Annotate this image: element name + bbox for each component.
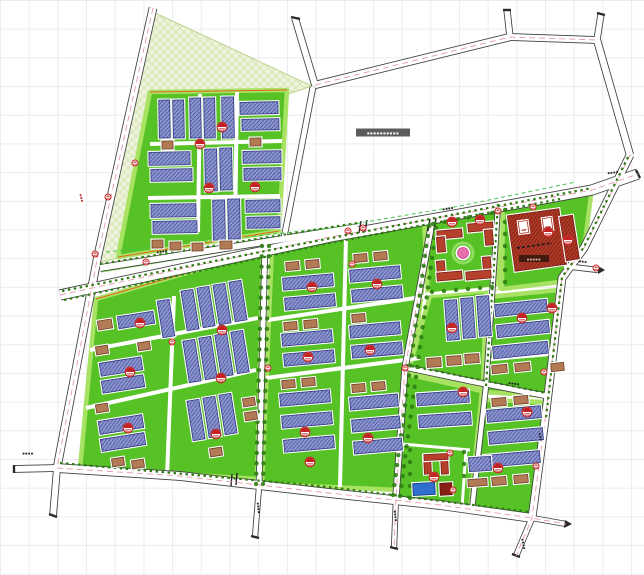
plot-stamp — [216, 373, 226, 383]
building-accessory-group — [463, 352, 481, 365]
building-accessory-group — [130, 457, 147, 470]
building-accessory-group — [248, 136, 262, 147]
building-accessory — [427, 358, 442, 368]
street-tree — [478, 286, 482, 290]
node-marker — [450, 487, 456, 493]
building-residential-slab-group — [220, 95, 236, 139]
building-public-red — [437, 271, 463, 281]
road-west-stub-down — [53, 468, 57, 516]
building-residential-slab-group — [151, 219, 198, 235]
node-marker — [132, 160, 138, 166]
node-marker-ring — [530, 204, 536, 210]
building-accessory — [374, 251, 388, 260]
plot-stamp — [123, 423, 133, 433]
street-tree — [503, 208, 507, 212]
building-residential-slab-group — [467, 455, 493, 474]
building-accessory — [514, 395, 529, 404]
site-plan-svg: ▪▪▪▪▪▪▪▪▪▪▪▪▪▪▪▪▪▪▪▪▪▪▪▪▪▪▪▪▪▪▪▪▪▪▪▪▪▪▪▪… — [0, 0, 644, 575]
street-tree — [503, 232, 507, 236]
building-residential-slab — [242, 119, 279, 131]
plot-stamp — [300, 427, 310, 437]
street-tree — [255, 440, 259, 444]
street-tree — [503, 268, 507, 272]
building-entry-symbol — [518, 220, 529, 233]
building-accessory-group — [160, 139, 174, 150]
node-marker — [447, 450, 453, 456]
building-residential-slab — [213, 200, 226, 240]
plot-stamp — [217, 122, 227, 132]
street-tree — [393, 473, 397, 477]
street-tree — [255, 451, 259, 455]
street-tree — [400, 474, 404, 478]
street-tree — [408, 414, 412, 418]
building-accessory — [250, 138, 261, 146]
street-tree — [407, 373, 411, 377]
node-marker — [265, 365, 271, 371]
street-tree — [262, 430, 266, 434]
building-accessory — [282, 379, 296, 388]
plot-stamp — [522, 407, 532, 417]
road-north-b-stub — [507, 10, 510, 37]
building-residential-slab-group — [218, 146, 234, 191]
reserved-area-tag-text: ▪▪▪▪▪▪▪▪▪▪ — [367, 131, 399, 136]
building-residential-slab — [151, 169, 192, 182]
building-accessory — [242, 397, 255, 407]
building-accessory — [468, 478, 487, 486]
building-accessory-group — [94, 401, 111, 414]
building-accessory-group — [513, 361, 532, 374]
street-tree — [259, 285, 263, 289]
building-accessory-group — [300, 376, 317, 388]
street-tree — [259, 264, 263, 268]
building-public-red-group — [483, 228, 496, 247]
building-accessory-group — [208, 445, 225, 458]
building-residential-slab — [153, 221, 197, 234]
building-residential-slab — [204, 98, 216, 138]
building-accessory-group — [280, 378, 297, 390]
street-tree — [392, 483, 396, 487]
junction-tick — [231, 474, 232, 486]
building-accessory-group — [549, 361, 566, 374]
building-accessory — [162, 141, 173, 149]
node-marker-ring — [169, 339, 175, 345]
road-v3 — [284, 87, 313, 238]
building-residential-slab-group — [211, 198, 227, 241]
street-tree — [408, 448, 412, 452]
kindergarten-plaza-group — [453, 243, 473, 263]
street-tree — [257, 368, 261, 372]
street-tree — [260, 244, 264, 248]
street-tree — [421, 264, 425, 268]
node-marker-ring — [92, 251, 98, 257]
building-accessory-group — [490, 396, 508, 408]
node-marker-ring — [105, 194, 111, 200]
node-marker — [143, 259, 149, 265]
street-tree — [261, 461, 265, 465]
node-marker — [533, 463, 539, 469]
street-tree — [411, 395, 415, 399]
node-marker-ring — [541, 369, 547, 375]
street-tree — [416, 355, 420, 359]
plot-stamp — [125, 367, 135, 377]
entry-symbol-mark — [521, 230, 526, 231]
building-accessory — [352, 383, 366, 392]
street-tree — [263, 399, 267, 403]
street-tree — [266, 285, 270, 289]
building-residential-slab — [149, 152, 190, 166]
node-marker — [402, 365, 408, 371]
building-residential-slab — [220, 148, 233, 190]
street-tree — [265, 306, 269, 310]
street-tree — [395, 463, 399, 467]
street-tree — [403, 454, 407, 458]
street-tree — [419, 335, 423, 339]
node-marker-ring — [593, 265, 599, 271]
street-tree — [255, 430, 259, 434]
building-accessory-group — [512, 473, 530, 485]
street-tree — [503, 244, 507, 248]
street-tree — [258, 306, 262, 310]
street-tree — [442, 289, 446, 293]
building-residential-slab — [240, 102, 278, 115]
node-marker-ring — [450, 487, 456, 493]
street-tree — [408, 472, 412, 476]
building-residential-slab — [461, 298, 476, 339]
node-marker — [530, 204, 536, 210]
plot-stamp — [543, 227, 553, 237]
building-accessory — [551, 362, 565, 371]
building-residential-slab-group — [157, 98, 172, 139]
street-tree — [263, 378, 267, 382]
street-tree — [254, 461, 258, 465]
street-tree — [391, 493, 395, 497]
street-tree — [266, 264, 270, 268]
node-marker-ring — [447, 450, 453, 456]
building-residential-slab — [246, 200, 280, 213]
building-public-red — [484, 230, 493, 246]
node-marker-ring — [533, 463, 539, 469]
building-public-red-group — [435, 235, 448, 254]
building-residential-slab-group — [171, 98, 186, 139]
street-tree — [466, 287, 470, 291]
street-tree — [416, 304, 420, 308]
plot-stamp — [204, 183, 214, 193]
node-marker-ring — [345, 228, 351, 234]
road-north-stub-a — [295, 18, 315, 85]
building-accessory — [465, 354, 480, 364]
street-tree — [263, 389, 267, 393]
street-tree — [431, 246, 435, 250]
street-tree — [424, 244, 428, 248]
pool-group — [411, 481, 437, 497]
street-tree — [257, 347, 261, 351]
street-tree — [412, 333, 416, 337]
building-accessory — [492, 397, 507, 406]
building-accessory — [111, 457, 124, 467]
building-accessory-group — [490, 363, 509, 376]
plot-stamp — [547, 303, 557, 313]
building-accessory — [209, 447, 222, 457]
street-tree — [398, 494, 402, 498]
building-accessory — [152, 240, 163, 248]
building-public-red-group — [422, 452, 449, 462]
street-tree — [258, 316, 262, 320]
street-tree — [261, 471, 265, 475]
node-marker — [360, 225, 366, 231]
building-accessory — [97, 319, 112, 330]
node-marker-ring — [402, 365, 408, 371]
street-tree — [406, 434, 410, 438]
road-label-k-text: ▪▪▪ — [578, 259, 587, 264]
building-public-red — [424, 453, 448, 460]
building-accessory — [284, 321, 298, 330]
street-tree — [462, 462, 466, 466]
building-accessory — [302, 377, 316, 386]
street-tree — [256, 389, 260, 393]
building-residential-slab — [445, 300, 460, 341]
building-public-red — [436, 237, 445, 253]
building-entry-symbol-group — [517, 219, 531, 236]
plaza-pink-circle — [458, 248, 469, 259]
node-marker — [105, 194, 111, 200]
building-residential-slab-group — [240, 117, 280, 132]
street-tree — [423, 305, 427, 309]
street-tree — [262, 420, 266, 424]
plot-stamp — [475, 215, 485, 225]
road-label-k: ▪▪▪ — [578, 259, 587, 264]
street-tree — [404, 393, 408, 397]
road-label-e-text: ▪▪▪▪ — [22, 452, 34, 456]
street-tree — [267, 244, 271, 248]
street-tree — [264, 358, 268, 362]
building-accessory-group — [445, 354, 463, 367]
node-marker — [349, 261, 355, 267]
street-tree — [396, 453, 400, 457]
street-tree — [424, 295, 428, 299]
node-marker — [169, 339, 175, 345]
plot-stamp — [303, 352, 313, 362]
street-tree — [256, 378, 260, 382]
building-accessory-group — [150, 238, 164, 249]
plot-stamp — [429, 472, 439, 482]
plot-stamp — [517, 313, 527, 323]
street-tree — [414, 375, 418, 379]
street-tree — [462, 474, 466, 478]
building-accessory — [95, 403, 108, 413]
building-accessory-group — [425, 356, 443, 369]
node-marker-ring — [143, 259, 149, 265]
building-accessory — [492, 364, 508, 374]
building-accessory — [95, 345, 108, 355]
street-tree — [412, 385, 416, 389]
street-tree — [265, 296, 269, 300]
road-label-d: ▪▪▪ — [78, 194, 84, 203]
building-accessory-group — [190, 241, 204, 252]
road-northeast-d — [597, 40, 630, 155]
node-marker-ring — [265, 365, 271, 371]
street-tree — [260, 254, 264, 258]
plot-stamp — [458, 387, 468, 397]
street-tree — [403, 403, 407, 407]
plot-stamp — [447, 323, 457, 333]
street-tree — [267, 254, 271, 258]
street-tree — [409, 353, 413, 357]
building-residential-slab-group — [226, 197, 242, 240]
building-accessory-group — [304, 258, 321, 270]
building-accessory-group — [282, 320, 299, 332]
street-tree — [415, 365, 419, 369]
building-residential-slab-group — [244, 198, 281, 214]
street-tree — [264, 347, 268, 351]
street-tree — [503, 256, 507, 260]
street-tree — [490, 285, 494, 289]
school-plate-text: ▪▪▪▪▪ — [527, 258, 541, 262]
plot-stamp — [195, 139, 205, 149]
street-tree — [259, 275, 263, 279]
building-accessory-group — [218, 239, 233, 250]
building-accessory — [354, 253, 368, 262]
plot-stamp — [365, 345, 375, 355]
street-tree — [258, 327, 262, 331]
street-tree — [423, 254, 427, 258]
street-tree — [408, 496, 412, 500]
node-marker-ring — [495, 208, 501, 214]
plot-stamp — [305, 457, 315, 467]
building-residential-slab — [151, 204, 196, 218]
street-tree — [408, 363, 412, 367]
plot-stamp — [307, 282, 317, 292]
building-accessory — [131, 459, 144, 469]
building-accessory — [306, 259, 320, 268]
building-accessory-group — [370, 380, 387, 392]
street-tree — [431, 222, 435, 226]
building-accessory — [492, 476, 507, 485]
road-west-stub-left — [14, 468, 57, 469]
street-tree — [430, 290, 434, 294]
building-residential-slab-group — [149, 167, 193, 183]
plot-stamp — [563, 235, 573, 245]
street-tree — [407, 424, 411, 428]
plot-stamp — [211, 429, 221, 439]
building-accessory-group — [168, 240, 182, 251]
street-tree — [257, 337, 261, 341]
street-tree — [401, 413, 405, 417]
building-accessory-group — [350, 312, 367, 324]
building-accessory-group — [94, 343, 111, 356]
site-plan-canvas: ▪▪▪▪▪▪▪▪▪▪▪▪▪▪▪▪▪▪▪▪▪▪▪▪▪▪▪▪▪▪▪▪▪▪▪▪▪▪▪▪… — [0, 0, 644, 575]
plot-stamp — [363, 433, 373, 443]
street-tree — [420, 274, 424, 278]
building-residential-slab-group — [188, 96, 203, 139]
building-residential-slab-group — [202, 96, 217, 139]
street-tree — [265, 316, 269, 320]
building-residential-slab — [477, 296, 492, 337]
plot-stamp — [372, 279, 382, 289]
building-public-red — [466, 270, 492, 280]
building-residential-slab — [173, 100, 185, 138]
street-tree — [428, 266, 432, 270]
building-residential-slab — [469, 456, 492, 472]
node-marker — [495, 208, 501, 214]
junction-tick — [236, 473, 237, 485]
parcel-substreet — [148, 196, 280, 198]
building-accessory — [170, 242, 181, 250]
street-tree — [420, 325, 424, 329]
street-tree — [405, 383, 409, 387]
street-tree — [404, 444, 408, 448]
street-tree — [402, 464, 406, 468]
street-tree — [262, 451, 266, 455]
street-tree — [415, 313, 419, 317]
street-tree — [462, 450, 466, 454]
street-tree — [411, 343, 415, 347]
road-label-e: ▪▪▪▪ — [22, 452, 34, 456]
street-tree — [265, 327, 269, 331]
street-tree — [427, 275, 431, 279]
building-residential-slab-group — [149, 202, 197, 219]
street-tree — [430, 256, 434, 260]
building-accessory — [192, 243, 203, 251]
street-tree — [419, 284, 423, 288]
building-residential-slab — [243, 151, 281, 164]
building-residential-slab-group — [459, 296, 477, 340]
building-accessory-group — [241, 395, 258, 408]
building-residential-slab-group — [475, 294, 493, 338]
building-accessory — [304, 319, 318, 328]
street-tree — [426, 285, 430, 289]
street-tree — [254, 482, 258, 486]
building-accessory — [352, 313, 366, 322]
plot-stamp — [135, 318, 145, 328]
street-tree — [257, 358, 261, 362]
building-residential-slab-group — [241, 149, 282, 165]
street-tree — [418, 345, 422, 349]
building-accessory-group — [110, 455, 127, 468]
node-marker — [345, 228, 351, 234]
street-tree — [263, 409, 267, 413]
node-marker-ring — [349, 261, 355, 267]
node-marker — [92, 251, 98, 257]
street-tree — [417, 294, 421, 298]
street-tree — [490, 211, 494, 215]
street-tree — [443, 220, 447, 224]
node-marker — [593, 265, 599, 271]
plot-stamp — [493, 463, 503, 473]
building-accessory — [515, 362, 531, 372]
building-accessory — [514, 474, 529, 483]
building-residential-slab — [247, 217, 280, 229]
street-tree — [413, 323, 417, 327]
building-residential-slab-group — [147, 150, 191, 167]
street-tree — [466, 215, 470, 219]
school-plate: ▪▪▪▪▪ — [519, 255, 549, 262]
plot-stamp — [217, 325, 227, 335]
reserved-area-tag: ▪▪▪▪▪▪▪▪▪▪ — [356, 129, 410, 137]
building-residential-slab-group — [443, 298, 461, 342]
building-accessory — [137, 341, 150, 351]
street-tree — [408, 460, 412, 464]
node-marker-ring — [132, 160, 138, 166]
street-tree — [399, 484, 403, 488]
building-accessory — [372, 381, 386, 390]
street-tree — [264, 337, 268, 341]
building-accessory-group — [302, 318, 319, 330]
plot-stamp — [447, 217, 457, 227]
building-accessory — [286, 261, 300, 270]
building-residential-slab — [190, 98, 202, 138]
building-residential-slab-group — [238, 100, 279, 116]
building-accessory-group — [490, 475, 508, 487]
